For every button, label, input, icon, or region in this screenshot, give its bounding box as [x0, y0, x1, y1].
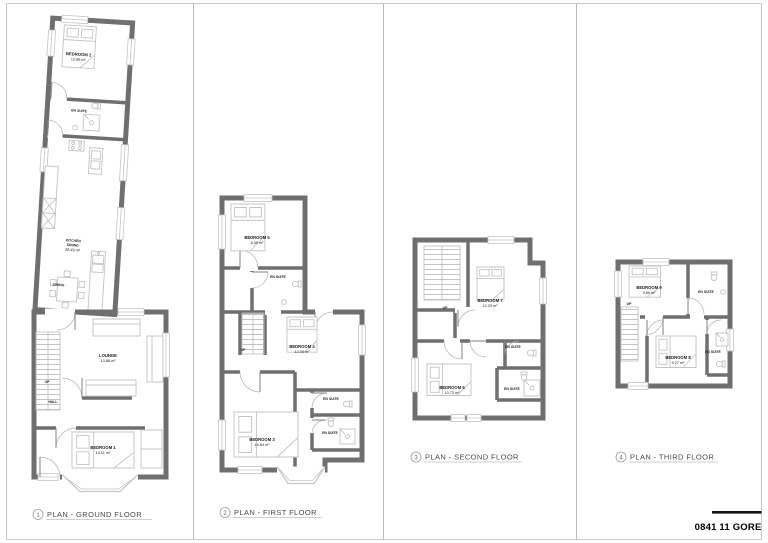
shower-icon [716, 333, 728, 346]
room-area-bedroom-8: 9.27 m² [672, 361, 686, 365]
room-label-bedroom-7: BEDROOM 7 [477, 298, 503, 303]
dining-table-icon [49, 270, 85, 309]
room-area-bedroom-9: 9.86 m² [643, 291, 657, 295]
toilet-icon [521, 372, 527, 381]
room-label-ensuite-top-sf: EN SUITE [505, 345, 521, 349]
bed-icon [234, 412, 298, 457]
bed-icon [477, 267, 504, 300]
toilet-icon [343, 401, 352, 407]
plan-title-first: 2 PLAN - FIRST FLOOR [220, 508, 322, 518]
room-label-kitchen-line2: DINING [67, 243, 79, 248]
sink-icon [73, 125, 78, 130]
counter-sink-icon [88, 148, 103, 175]
room-area-bedroom-1: 13.11 m² [96, 451, 111, 455]
island-counter-icon [88, 251, 106, 314]
ground-floor-upper-wing: BEDROOM 2 12.65 m² EN SUITE [31, 14, 136, 314]
third-floor-plan: UP BEDROOM 9 9.86 m² EN SUITE BEDROOM 8 … [615, 259, 734, 463]
room-label-bedroom-5: BEDROOM 5 [244, 235, 270, 240]
architectural-sheet: BEDROOM 2 12.65 m² EN SUITE [0, 0, 768, 543]
hob-icon [69, 140, 85, 151]
bay-window [277, 467, 325, 484]
room-label-bedroom-3: BEDROOM 3 [249, 437, 275, 442]
staircase [36, 332, 60, 410]
room-area-bedroom-6: 13.73 m² [445, 391, 461, 395]
room-area-kitchen: 26.49 m² [65, 248, 81, 253]
room-label-ensuite-top-ff: EN SUITE [270, 275, 286, 279]
toilet-icon [292, 281, 301, 287]
first-floor-plan: UP BEDROOM 5 8.35 m² EN SUITE BEDROOM 4 … [219, 195, 366, 518]
plan-title-text: PLAN - GROUND FLOOR [47, 510, 142, 519]
staircase [621, 307, 638, 361]
stairs-up-label: UP [45, 380, 50, 384]
title-block: 0841 11 GORE [695, 511, 762, 533]
bay-window [62, 475, 138, 492]
title-block-rule [712, 511, 762, 514]
plan-title-third: 4 PLAN - THIRD FLOOR [616, 452, 718, 462]
sink-icon [282, 300, 287, 305]
toilet-icon [527, 350, 536, 356]
room-label-ensuite-gf: EN SUITE [71, 108, 88, 113]
room-area-bedroom-4: 12.05 m² [295, 350, 311, 354]
room-area-bedroom-7: 12.20 m² [483, 304, 499, 308]
shower-icon [83, 114, 100, 131]
room-label-lounge: LOUNGE [99, 353, 117, 358]
project-code: 0841 11 GORE [695, 522, 762, 533]
sofa-icons [86, 319, 163, 396]
sink-icon [721, 290, 726, 295]
room-label-bedroom-4: BEDROOM 4 [289, 344, 315, 349]
room-label-hall: HALL [48, 400, 57, 404]
room-label-dining: DINING [52, 283, 64, 288]
wardrobe-icon [141, 430, 162, 468]
room-label-ensuite-low-ff: EN SUITE [322, 431, 338, 435]
plan-title-ground: 1 PLAN - GROUND FLOOR [33, 510, 152, 520]
stairs-up-label: UP [443, 306, 448, 310]
room-label-ensuite-right-tf: EN SUITE [705, 350, 721, 354]
plan-title-text: PLAN - THIRD FLOOR [630, 453, 714, 462]
toilet-icon [716, 361, 725, 367]
plan-title-second: 3 PLAN - SECOND FLOOR [411, 452, 522, 462]
plan-title-text: PLAN - FIRST FLOOR [234, 508, 317, 517]
staircase [424, 246, 460, 300]
ensuite-fixtures [73, 102, 101, 132]
room-area-lounge: 13.88 m² [101, 359, 117, 363]
stairs-up-label: UP [241, 348, 246, 352]
stairs-up-label: UP [627, 302, 632, 306]
toilet-icon [711, 272, 717, 281]
plan-title-text: PLAN - SECOND FLOOR [425, 453, 519, 462]
bed-icon [72, 432, 134, 468]
shower-icon [524, 380, 540, 396]
room-label-bedroom-6: BEDROOM 6 [439, 385, 465, 390]
kitchen-fixtures [36, 139, 112, 314]
toilet-icon [328, 418, 334, 427]
room-area-bedroom-3: 15.84 m² [255, 443, 271, 447]
toilet-icon [92, 103, 101, 110]
room-label-ensuite-mid-ff: EN SUITE [323, 397, 339, 401]
room-label-bedroom-8: BEDROOM 8 [665, 355, 691, 360]
ground-floor-lower-section: UP LOUNGE 13.88 m² HALL BEDROOM 1 13.11 … [34, 309, 170, 492]
room-label-bedroom-1: BEDROOM 1 [90, 445, 116, 450]
room-label-bedroom-9: BEDROOM 9 [636, 285, 662, 290]
second-floor-plan: UP BEDROOM 7 12.20 m² EN SUITE EN SUITE … [411, 237, 547, 463]
room-area-bedroom-5: 8.35 m² [251, 241, 265, 245]
ground-floor-plan: BEDROOM 2 12.65 m² EN SUITE [31, 14, 169, 519]
room-label-ensuite-low-sf: EN SUITE [504, 387, 520, 391]
room-label-ensuite-top-tf: EN SUITE [698, 290, 714, 294]
bed-icon [62, 25, 97, 69]
floor-plan-drawing: BEDROOM 2 12.65 m² EN SUITE [0, 0, 768, 543]
shower-icon [340, 429, 355, 444]
